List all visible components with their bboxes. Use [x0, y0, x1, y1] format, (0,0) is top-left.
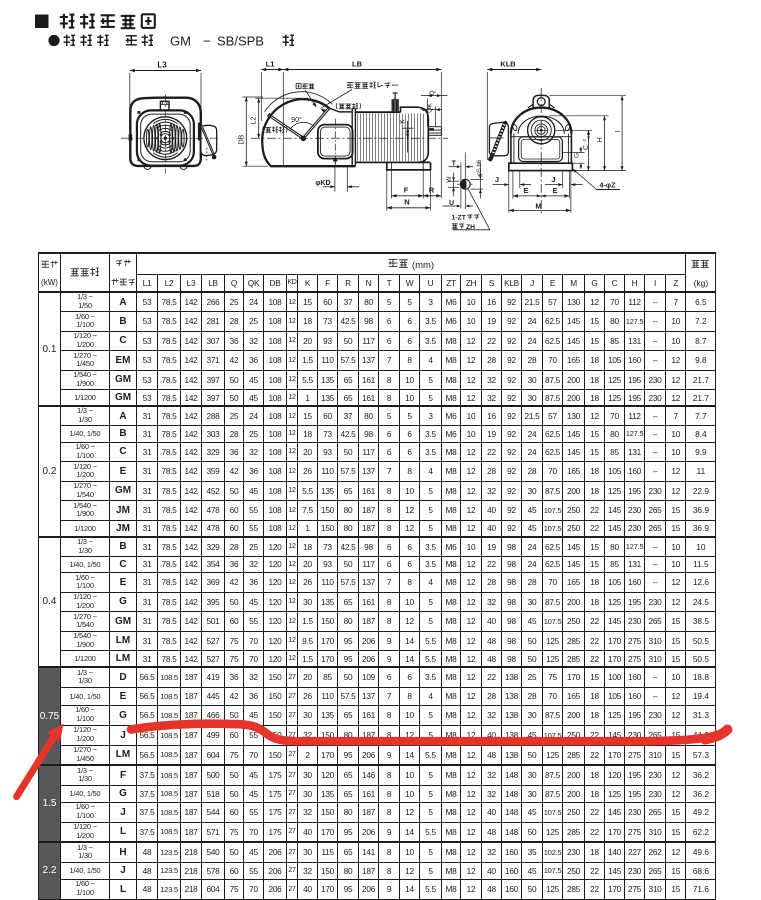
svg-text:R: R [429, 186, 435, 195]
svg-text:90°: 90° [291, 116, 302, 124]
svg-text:Q: Q [429, 90, 436, 95]
svg-text:4-φZ: 4-φZ [600, 180, 617, 189]
svg-text:L2: L2 [251, 117, 258, 125]
svg-text:L3: L3 [157, 61, 167, 70]
svg-text:G: G [574, 153, 581, 158]
svg-text:E: E [552, 186, 557, 195]
svg-text:I: I [615, 130, 622, 132]
svg-text:J: J [551, 175, 555, 184]
svg-text:J: J [495, 175, 499, 184]
svg-text:QK: QK [427, 103, 434, 113]
svg-text:M: M [535, 202, 541, 211]
svg-text:E: E [523, 186, 528, 195]
svg-text:W: W [446, 176, 453, 183]
svg-text:φKD: φKD [315, 180, 330, 187]
svg-text:C: C [583, 145, 590, 150]
svg-text:H: H [597, 137, 604, 142]
svg-text:N: N [404, 198, 409, 207]
svg-text:1-ZT: 1-ZT [452, 215, 467, 222]
svg-text:DB: DB [238, 134, 245, 144]
svg-text:φS h6: φS h6 [477, 159, 483, 176]
svg-text:K: K [400, 119, 407, 124]
svg-text:KLB: KLB [500, 60, 516, 69]
svg-text:LB: LB [352, 60, 363, 69]
svg-text:F: F [404, 186, 409, 195]
svg-text:-0.5: -0.5 [586, 132, 591, 140]
svg-text:L1: L1 [266, 60, 275, 69]
